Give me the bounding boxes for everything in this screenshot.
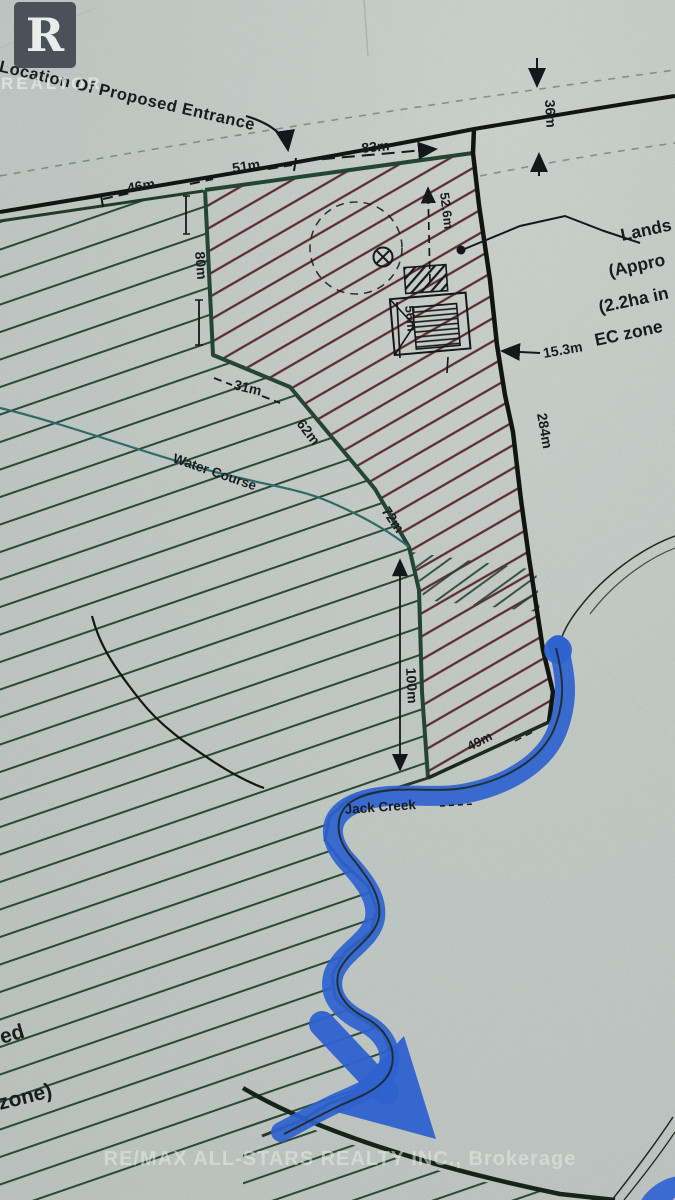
remax-logo-letter: R	[26, 12, 64, 58]
dim-100m: 100m	[403, 667, 421, 704]
dim-36m: 36m	[542, 99, 559, 128]
survey-map: e Location Of Proposed Entrance 46m 51m …	[0, 0, 675, 1200]
dim-56m: 56m	[402, 305, 420, 332]
brokerage-watermark: RE/MAX ALL-STARS REALTY INC., Brokerage	[70, 1148, 610, 1171]
dim-83m: 83m	[361, 137, 391, 156]
structure-tick	[447, 357, 448, 373]
remax-logo: R	[14, 2, 76, 68]
proposed-building	[404, 265, 448, 294]
realtor-watermark: REALTOR	[1, 74, 111, 94]
site-plan-document: e Location Of Proposed Entrance 46m 51m …	[0, 0, 675, 1200]
dim-80m: 80m	[192, 251, 210, 280]
